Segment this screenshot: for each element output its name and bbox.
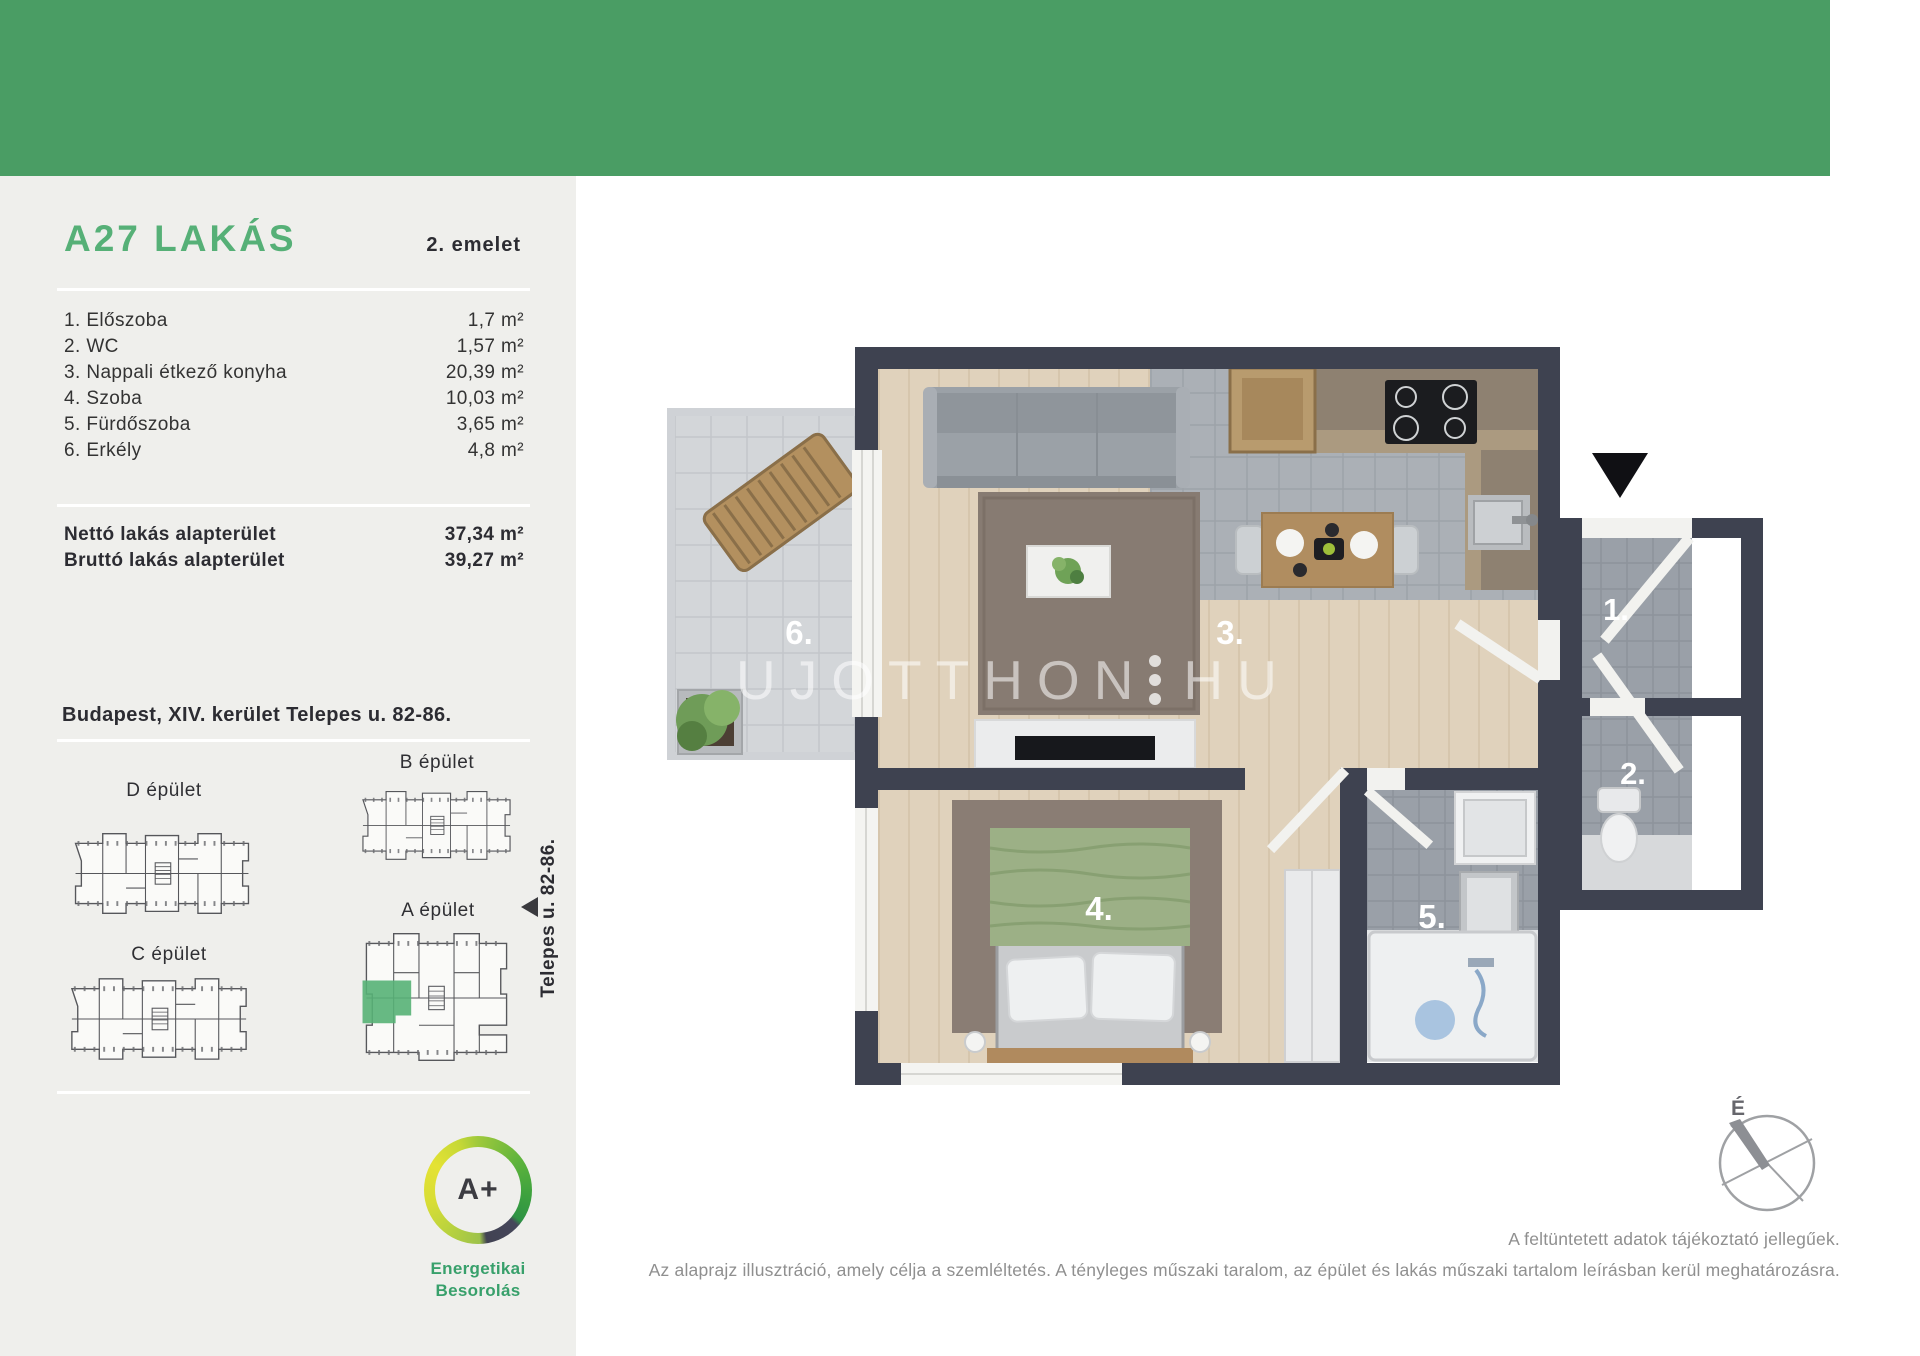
room-name: 5. Fürdőszoba: [64, 412, 191, 438]
building-label-a: A épület: [401, 900, 474, 922]
total-row: Bruttó lakás alapterület 39,27 m²: [64, 548, 524, 574]
room-row: 4. Szoba 10,03 m²: [64, 386, 524, 412]
compass-north-label: É: [1731, 1097, 1745, 1120]
disclaimer: A feltüntetett adatok tájékoztató jelleg…: [540, 1224, 1840, 1286]
room-label-2: 2.: [1620, 756, 1646, 791]
room-row: 6. Erkély 4,8 m²: [64, 438, 524, 464]
building-plan-b: [358, 780, 515, 870]
balcony-plant: [676, 690, 742, 754]
compass-icon: É: [1702, 1093, 1832, 1225]
room-name: 3. Nappali étkező konyha: [64, 360, 287, 386]
street-direction-arrow-icon: [521, 897, 538, 917]
info-sidebar: A27 LAKÁS 2. emelet 1. Előszoba 1,7 m² 2…: [0, 176, 576, 1356]
room-label-3: 3.: [1216, 614, 1244, 651]
building-plan-a-highlighted: [358, 924, 515, 1070]
coffee-table: [1027, 546, 1110, 597]
address: Budapest, XIV. kerület Telepes u. 82-86.: [62, 704, 452, 727]
room-name: 1. Előszoba: [64, 308, 168, 334]
street-name-vertical: Telepes u. 82-86.: [538, 828, 560, 1008]
total-row: Nettó lakás alapterület 37,34 m²: [64, 522, 524, 548]
tv-cabinet: [975, 720, 1195, 768]
kitchen-sink: [1468, 495, 1538, 550]
apartment-title: A27 LAKÁS: [64, 218, 297, 260]
divider: [57, 1091, 530, 1094]
dining-table: [1236, 513, 1418, 587]
room-area: 10,03 m²: [446, 386, 524, 412]
energy-rating-inner: A+: [435, 1147, 521, 1233]
divider: [57, 288, 530, 291]
area-totals: Nettó lakás alapterület 37,34 m² Bruttó …: [64, 522, 524, 574]
room-area: 20,39 m²: [446, 360, 524, 386]
building-plan-c: [66, 966, 252, 1071]
room-row: 5. Fürdőszoba 3,65 m²: [64, 412, 524, 438]
watermark: UJOTTHON HU: [736, 648, 1291, 712]
washing-machine: [1455, 792, 1535, 864]
room-list: 1. Előszoba 1,7 m² 2. WC 1,57 m² 3. Napp…: [64, 308, 524, 464]
floor-plan-rendering: 1. 2. 3. 4. 5. 6.: [640, 330, 1800, 1100]
sofa: [923, 387, 1190, 488]
room-label-5: 5.: [1418, 898, 1446, 935]
disclaimer-line1: A feltüntetett adatok tájékoztató jelleg…: [540, 1224, 1840, 1255]
floorplan-brochure-page: A27 LAKÁS 2. emelet 1. Előszoba 1,7 m² 2…: [0, 0, 1920, 1356]
bed: [965, 828, 1210, 1065]
energy-rating-value: A+: [457, 1173, 498, 1207]
building-label-d: D épület: [126, 780, 202, 802]
room-name: 6. Erkély: [64, 438, 142, 464]
watermark-right: HU: [1183, 648, 1290, 712]
bathtub: [1369, 932, 1536, 1060]
building-plan-d: [66, 822, 258, 924]
room-area: 3,65 m²: [457, 412, 524, 438]
divider: [57, 739, 530, 742]
room-area: 4,8 m²: [468, 438, 524, 464]
room-area: 1,57 m²: [457, 334, 524, 360]
room-name: 4. Szoba: [64, 386, 142, 412]
toilet: [1598, 788, 1640, 862]
disclaimer-line2: Az alaprajz illusztráció, amely célja a …: [540, 1255, 1840, 1286]
entrance-arrow-icon: [1592, 453, 1648, 498]
watermark-dots-icon: [1149, 655, 1161, 705]
room-row: 3. Nappali étkező konyha 20,39 m²: [64, 360, 524, 386]
top-green-bar: [0, 0, 1830, 176]
total-label: Bruttó lakás alapterület: [64, 548, 285, 574]
room-label-4: 4.: [1085, 890, 1113, 927]
divider: [57, 504, 530, 507]
building-label-c: C épület: [131, 944, 207, 966]
building-label-b: B épület: [400, 752, 475, 774]
room-row: 2. WC 1,57 m²: [64, 334, 524, 360]
total-value: 37,34 m²: [445, 522, 524, 548]
cooktop: [1385, 380, 1477, 444]
floor-label: 2. emelet: [426, 234, 521, 257]
room-area: 1,7 m²: [468, 308, 524, 334]
total-value: 39,27 m²: [445, 548, 524, 574]
watermark-left: UJOTTHON: [736, 648, 1147, 712]
total-label: Nettó lakás alapterület: [64, 522, 276, 548]
room-label-1: 1.: [1603, 592, 1629, 627]
energy-rating-ring-icon: A+: [424, 1136, 532, 1244]
room-name: 2. WC: [64, 334, 119, 360]
room-row: 1. Előszoba 1,7 m²: [64, 308, 524, 334]
wardrobe: [1285, 870, 1340, 1062]
room-label-6: 6.: [785, 614, 813, 651]
